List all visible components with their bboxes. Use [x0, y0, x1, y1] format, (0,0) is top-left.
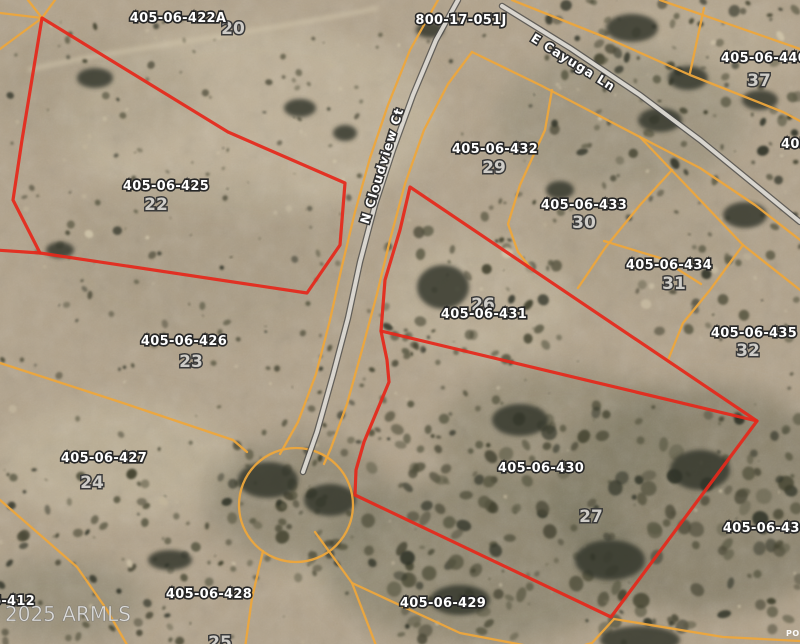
parcel-map[interactable]: 203729303126322223242527405-06-422A800-1…	[0, 0, 800, 644]
parcel-apn-label[interactable]: 405-06-434	[626, 258, 712, 273]
parcel-apn-label[interactable]: 405-06-432	[452, 142, 538, 157]
lot-number[interactable]: 27	[579, 507, 603, 527]
parcel-map-viewport: 203729303126322223242527405-06-422A800-1…	[0, 0, 800, 644]
parcel-apn-label[interactable]: 405-06-426	[141, 334, 227, 349]
lot-number[interactable]: 25	[208, 633, 232, 644]
powered-by-attribution: POWE	[786, 629, 800, 638]
lot-number[interactable]: 32	[736, 341, 760, 361]
parcel-apn-label[interactable]: 405-06-430	[498, 461, 584, 476]
lot-number[interactable]: 30	[572, 213, 596, 233]
parcel-apn-label[interactable]: 405-06-436	[723, 521, 800, 536]
lot-number[interactable]: 24	[80, 473, 104, 493]
parcel-apn-label[interactable]: 405-06-431	[441, 307, 527, 322]
lot-number[interactable]: 31	[662, 274, 686, 294]
parcel-apn-label[interactable]: 800-17-051J	[415, 13, 506, 28]
lot-number[interactable]: 37	[747, 71, 771, 91]
satellite-terrain	[0, 0, 800, 644]
parcel-apn-label[interactable]: 405-06-435	[711, 326, 797, 341]
parcel-apn-label[interactable]: 405-06-440	[721, 51, 800, 66]
parcel-apn-label[interactable]: 405-06-429	[400, 596, 486, 611]
armls-watermark: 2025 ARMLS	[5, 602, 131, 626]
parcel-apn-label[interactable]: 405-06-428	[166, 587, 252, 602]
parcel-apn-label[interactable]: 405-06-422A	[130, 11, 227, 26]
parcel-apn-label[interactable]: 405-06-427	[61, 451, 147, 466]
lot-number[interactable]: 23	[179, 352, 203, 372]
parcel-apn-label[interactable]: 405-06-433	[541, 198, 627, 213]
parcel-apn-label[interactable]: 405-	[781, 137, 800, 152]
lot-number[interactable]: 29	[482, 158, 506, 178]
parcel-apn-label[interactable]: 405-06-425	[123, 179, 209, 194]
lot-number[interactable]: 22	[144, 195, 168, 215]
